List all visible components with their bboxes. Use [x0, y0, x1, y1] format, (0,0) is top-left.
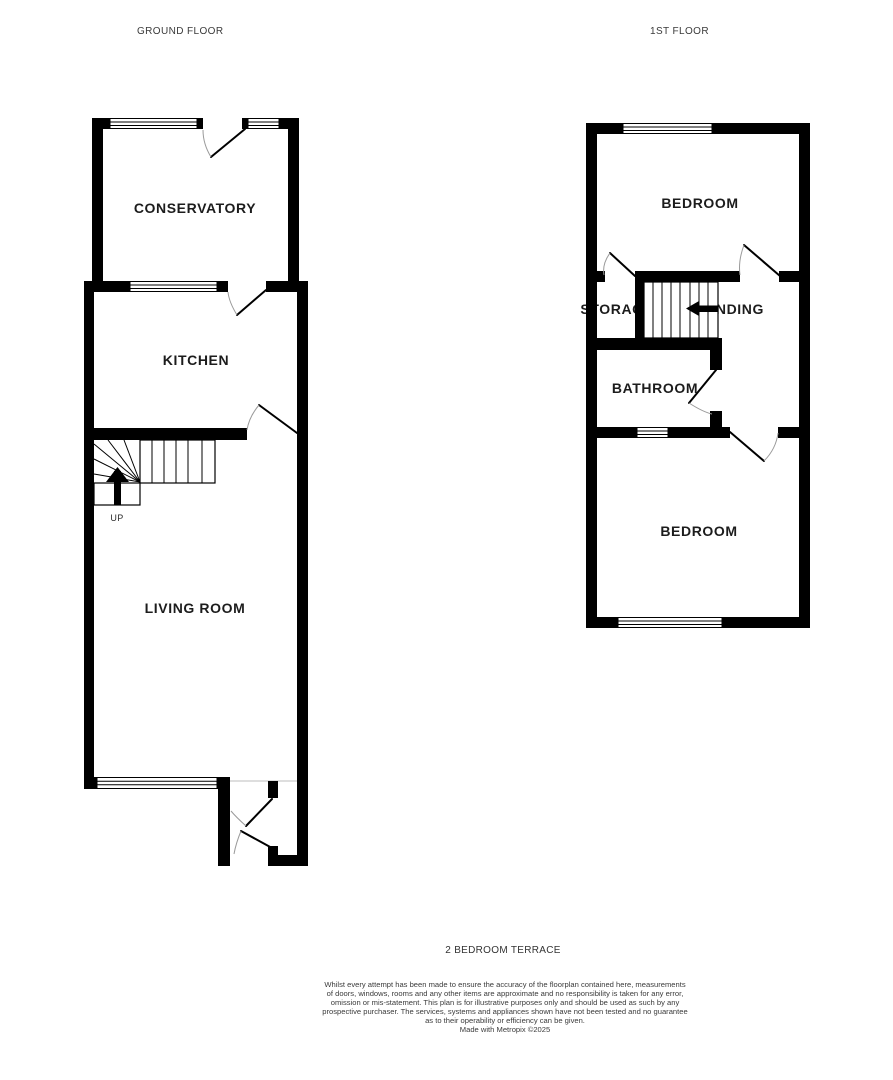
- wall: [710, 338, 722, 370]
- door: [231, 799, 272, 826]
- disclaimer-line: Whilst every attempt has been made to en…: [305, 980, 705, 989]
- stairs-up-label: UP: [110, 513, 123, 523]
- living-room-label: LIVING ROOM: [145, 600, 246, 616]
- conservatory-label: CONSERVATORY: [134, 200, 256, 216]
- wall: [218, 777, 230, 866]
- wall: [586, 617, 618, 628]
- wall: [297, 281, 308, 866]
- wall: [586, 123, 623, 134]
- wall: [92, 118, 110, 129]
- window: [618, 618, 722, 628]
- wall: [217, 281, 228, 292]
- wall: [84, 281, 94, 789]
- door: [203, 129, 245, 157]
- window: [110, 119, 197, 129]
- floorplan-page: GROUND FLOOR 1ST FLOOR: [0, 0, 893, 1080]
- door: [228, 290, 266, 315]
- door: [730, 432, 778, 461]
- first-floor-plan: STORAGE LANDING: [580, 123, 810, 628]
- window: [637, 428, 668, 438]
- disclaimer-line: prospective purchaser. The services, sys…: [305, 1007, 705, 1016]
- wall: [586, 338, 722, 350]
- disclaimer-line: of doors, windows, rooms and any other i…: [305, 989, 705, 998]
- wall: [586, 271, 605, 282]
- window: [623, 124, 712, 134]
- window: [97, 778, 217, 789]
- bathroom-label: BATHROOM: [612, 380, 698, 396]
- wall: [586, 427, 637, 438]
- ground-floor-plan: UP: [84, 118, 308, 866]
- kitchen-label: KITCHEN: [163, 352, 229, 368]
- wall: [268, 781, 278, 798]
- wall: [779, 271, 810, 282]
- wall: [722, 617, 810, 628]
- staircase: UP: [94, 440, 215, 523]
- wall: [84, 428, 247, 440]
- wall: [92, 118, 103, 291]
- wall: [586, 123, 597, 628]
- property-title: 2 BEDROOM TERRACE: [323, 945, 683, 956]
- entrance-porch: [218, 777, 308, 866]
- disclaimer-line: as to their operability or efficiency ca…: [305, 1016, 705, 1025]
- wall: [635, 271, 644, 344]
- wall: [242, 118, 248, 129]
- disclaimer-line: omission or mis-statement. This plan is …: [305, 998, 705, 1007]
- bedroom-front-label: BEDROOM: [661, 195, 738, 211]
- window: [248, 119, 279, 129]
- wall: [778, 427, 810, 438]
- door: [604, 253, 635, 276]
- wall: [668, 427, 730, 438]
- wall: [279, 118, 299, 129]
- door: [247, 405, 297, 433]
- wall: [712, 123, 810, 134]
- wall: [103, 281, 130, 292]
- bedroom-back-label: BEDROOM: [660, 523, 737, 539]
- door: [740, 245, 781, 276]
- window: [130, 282, 217, 292]
- wall: [635, 271, 740, 282]
- credit-line: Made with Metropix ©2025: [305, 1025, 705, 1034]
- door: [234, 831, 272, 854]
- floorplan-drawing: UP: [0, 0, 893, 1080]
- wall: [197, 118, 203, 129]
- disclaimer: Whilst every attempt has been made to en…: [305, 980, 705, 1034]
- wall: [799, 123, 810, 628]
- wall: [84, 777, 97, 789]
- wall: [288, 118, 299, 291]
